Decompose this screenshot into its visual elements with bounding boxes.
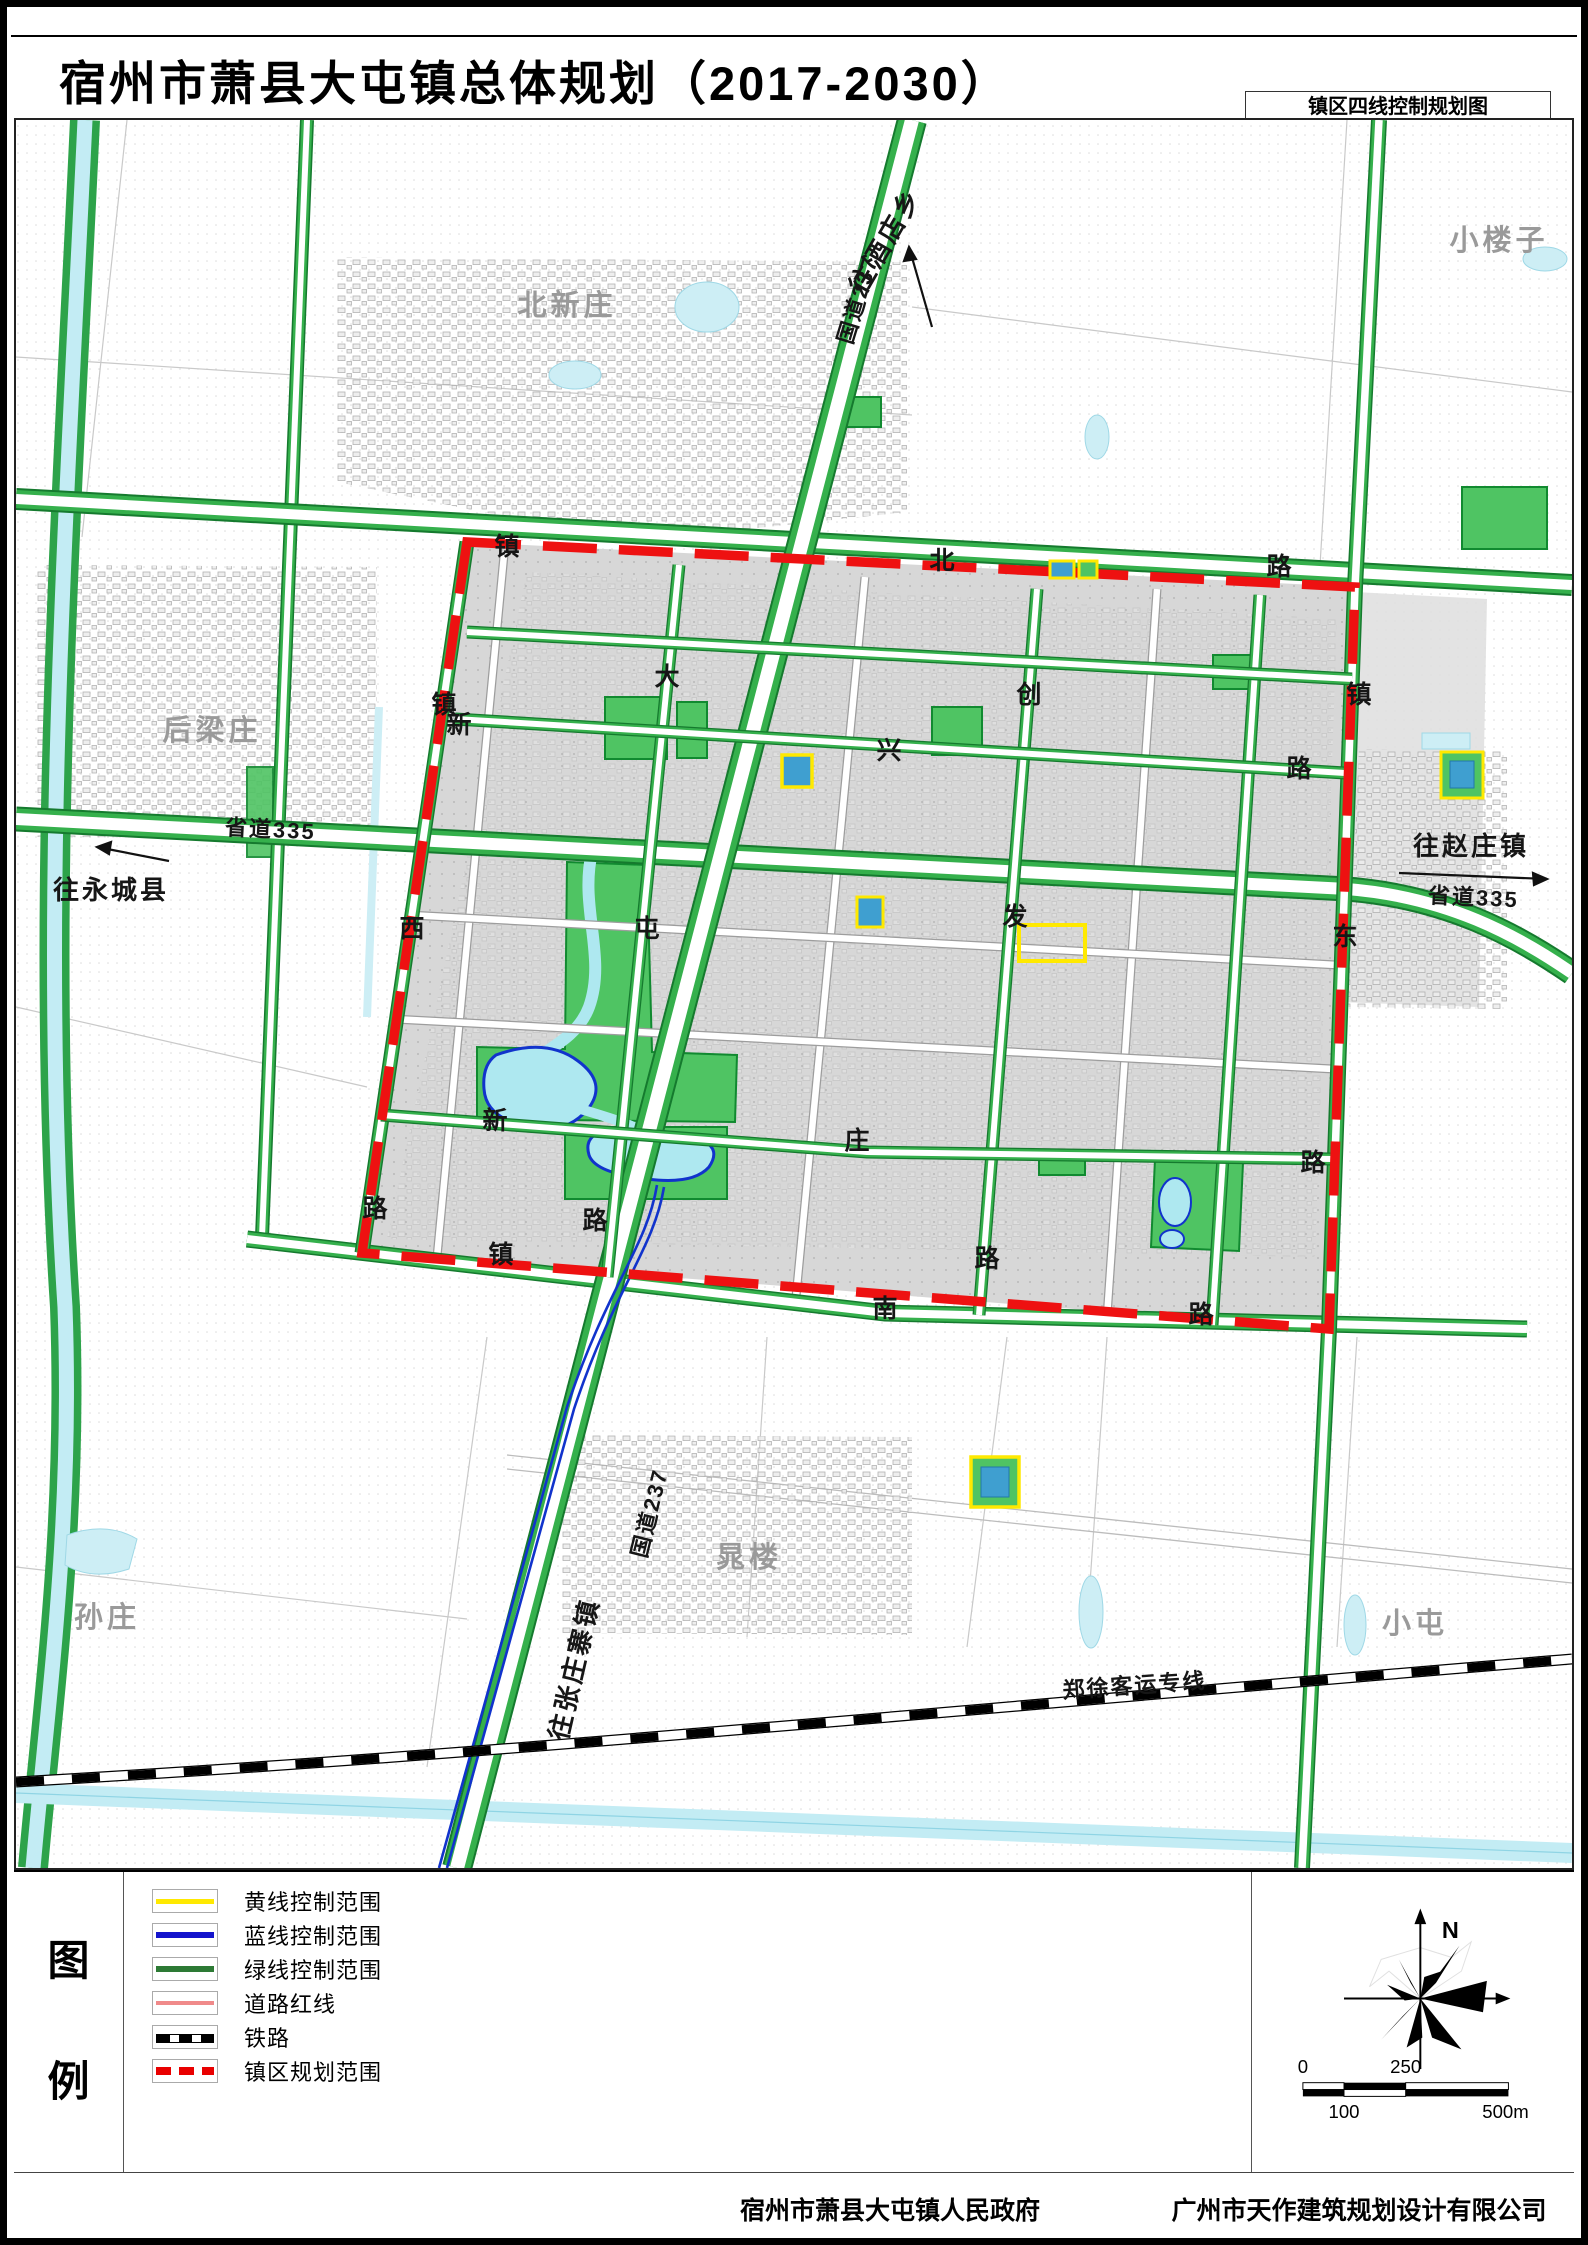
scale-bar: 0 250 100 500m (1298, 2056, 1529, 2122)
legend-title: 图 例 (14, 1872, 124, 2172)
footer-design-company: 广州市天作建筑规划设计有限公司 (1171, 2191, 1546, 2227)
scale-500m: 500m (1482, 2101, 1528, 2122)
scale-0: 0 (1298, 2056, 1308, 2077)
blue-line-swatch (152, 1923, 218, 1947)
plan-sheet: 宿州市萧县大屯镇总体规划（2017-2030） 镇区四线控制规划图 (0, 0, 1588, 2245)
legend-item-label: 蓝线控制范围 (244, 1919, 382, 1951)
compass-north-label: N (1442, 1917, 1459, 1943)
legend-item-redline: 道路红线 (152, 1986, 1251, 2020)
scale-100: 100 (1328, 2101, 1359, 2122)
reddash-line-swatch (152, 2059, 218, 2083)
footer: 宿州市萧县大屯镇人民政府 广州市天作建筑规划设计有限公司 (14, 2172, 1574, 2239)
legend-map-tools: N 0 250 100 500m (1252, 1872, 1574, 2172)
legend-panel: 图 例 黄线控制范围蓝线控制范围绿线控制范围道路红线铁路镇区规划范围 (14, 1870, 1574, 2172)
map-frame (14, 118, 1574, 1870)
legend-item-yellow: 黄线控制范围 (152, 1884, 1251, 1918)
compass-rose: N (1344, 1908, 1510, 2069)
rail-line-swatch (152, 2025, 218, 2049)
legend-item-blue: 蓝线控制范围 (152, 1918, 1251, 1952)
legend-title-char-1: 图 (14, 1927, 123, 1988)
legend-item-label: 黄线控制范围 (244, 1885, 382, 1917)
legend-title-char-2: 例 (14, 2048, 123, 2109)
legend-items: 黄线控制范围蓝线控制范围绿线控制范围道路红线铁路镇区规划范围 (124, 1872, 1252, 2172)
legend-item-label: 铁路 (244, 2021, 290, 2053)
footer-government-name: 宿州市萧县大屯镇人民政府 (740, 2191, 1040, 2227)
legend-item-rail: 铁路 (152, 2020, 1251, 2054)
green-line-swatch (152, 1957, 218, 1981)
legend-item-label: 道路红线 (244, 1987, 336, 2019)
yellow-line-swatch (152, 1889, 218, 1913)
redline-line-swatch (152, 1991, 218, 2015)
legend-item-green: 绿线控制范围 (152, 1952, 1251, 1986)
legend-item-label: 镇区规划范围 (244, 2055, 382, 2087)
scale-250: 250 (1390, 2056, 1421, 2077)
legend-item-reddash: 镇区规划范围 (152, 2054, 1251, 2088)
legend-item-label: 绿线控制范围 (244, 1953, 382, 1985)
